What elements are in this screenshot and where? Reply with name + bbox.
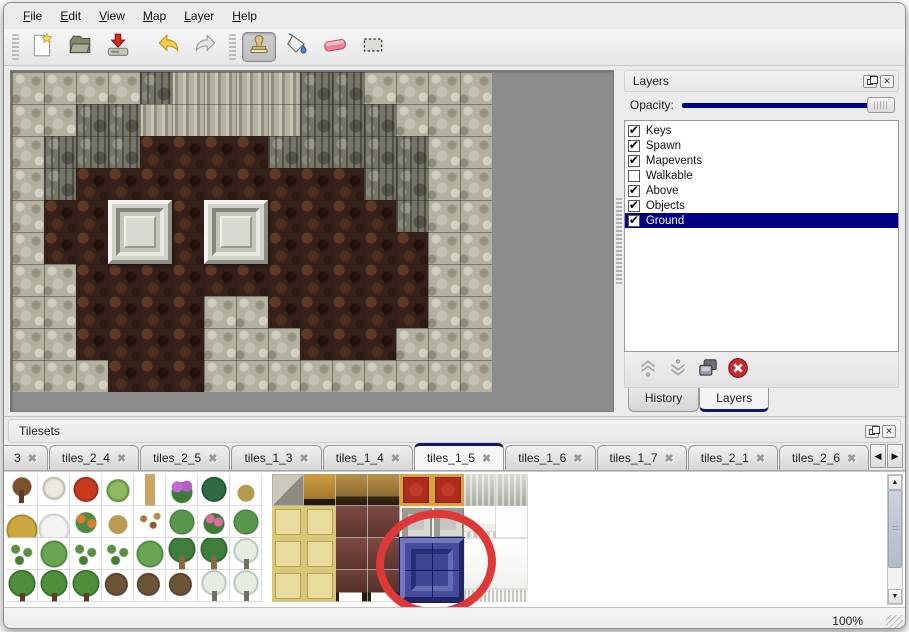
layer-name: Objects <box>646 200 685 212</box>
tileset-palette[interactable]: ▲ ▼ <box>4 471 905 607</box>
opacity-slider-handle[interactable] <box>867 97 895 113</box>
layer-visibility-checkbox[interactable] <box>628 170 640 182</box>
map-tile-rock-scale[interactable] <box>460 104 492 136</box>
map-tile-cobble-floor[interactable] <box>364 232 396 264</box>
tab-close-icon[interactable]: ✖ <box>665 452 674 465</box>
tileset-tile-sprout[interactable] <box>70 538 102 570</box>
tileset-tab-tiles_2_1[interactable]: tiles_2_1✖ <box>688 445 778 470</box>
tilesets-float-button[interactable] <box>865 425 879 438</box>
tileset-scrollbar[interactable]: ▲ ▼ <box>887 474 903 605</box>
map-tile-cobble-floor[interactable] <box>108 264 140 296</box>
map-tile-rock-scale[interactable] <box>428 136 460 168</box>
map-tile-cliff-wall[interactable] <box>364 104 396 136</box>
layer-visibility-checkbox[interactable] <box>628 125 640 137</box>
map-tile-cobble-floor[interactable] <box>396 232 428 264</box>
map-tile-cobble-floor[interactable] <box>108 168 140 200</box>
map-tile-rock-scale[interactable] <box>44 72 76 104</box>
tileset-tile-sprout[interactable] <box>102 538 134 570</box>
map-tile-rock-scale[interactable] <box>428 296 460 328</box>
map-tile-cobble-floor[interactable] <box>364 296 396 328</box>
map-tile-cliff-wall[interactable] <box>332 136 364 168</box>
map-tile-cliff-wall[interactable] <box>108 136 140 168</box>
layer-row-keys[interactable]: Keys <box>625 123 898 138</box>
tileset-tile-dgrass[interactable] <box>230 474 262 506</box>
map-tile-cobble-floor[interactable] <box>108 360 140 392</box>
scroll-tabs-left-button[interactable]: ◀ <box>870 444 886 468</box>
tileset-tile-stonec[interactable] <box>272 474 304 506</box>
tileset-tile-mat[interactable] <box>272 506 304 538</box>
scroll-tabs-right-button[interactable]: ▶ <box>887 444 903 468</box>
tab-close-icon[interactable]: ✖ <box>299 452 308 465</box>
layers-close-button[interactable]: ✕ <box>880 75 894 88</box>
tileset-tab-label: tiles_1_4 <box>336 451 384 465</box>
map-tile-cobble-floor[interactable] <box>172 296 204 328</box>
tileset-tab-tiles_1_4[interactable]: tiles_1_4✖ <box>323 445 413 470</box>
map-tile-cobble-floor[interactable] <box>172 264 204 296</box>
tileset-tab-tiles_2_4[interactable]: tiles_2_4✖ <box>49 445 139 470</box>
map-tile-rock-scale[interactable] <box>460 232 492 264</box>
tileset-tile-maroon[interactable] <box>336 506 368 538</box>
map-tile-rock-scale[interactable] <box>428 232 460 264</box>
tileset-tile-palm[interactable] <box>198 538 230 570</box>
tileset-tile-maroon[interactable] <box>368 538 400 570</box>
map-tile-cobble-floor[interactable] <box>236 264 268 296</box>
map-tile-rock-scale[interactable] <box>364 360 396 392</box>
map-tile-cobble-floor[interactable] <box>204 136 236 168</box>
map-tile-rock-scale[interactable] <box>268 360 300 392</box>
map-tile-cliff-wall[interactable] <box>300 72 332 104</box>
map-tile-cobble-floor[interactable] <box>396 264 428 296</box>
map-tile-cobble-floor[interactable] <box>108 296 140 328</box>
map-tile-rock-scale[interactable] <box>428 360 460 392</box>
tab-close-icon[interactable]: ✖ <box>28 452 37 465</box>
map-tile-stone-pillar[interactable] <box>236 72 268 104</box>
map-tile-cobble-floor[interactable] <box>300 296 332 328</box>
map-tile-cobble-floor[interactable] <box>300 232 332 264</box>
map-tile-cobble-floor[interactable] <box>396 296 428 328</box>
map-tile-cliff-wall[interactable] <box>364 136 396 168</box>
map-canvas[interactable] <box>10 70 614 412</box>
map-tile-cliff-wall[interactable] <box>396 200 428 232</box>
map-tile-rock-scale[interactable] <box>204 360 236 392</box>
map-tile-cobble-floor[interactable] <box>140 360 172 392</box>
map-tile-cobble-floor[interactable] <box>76 296 108 328</box>
undo-button[interactable] <box>151 32 185 62</box>
layer-visibility-checkbox[interactable] <box>628 140 640 152</box>
tileset-tile-gtable[interactable] <box>304 474 336 506</box>
map-tile-cobble-floor[interactable] <box>300 200 332 232</box>
map-tile-cobble-floor[interactable] <box>172 360 204 392</box>
map-tile-rock-scale[interactable] <box>44 264 76 296</box>
map-tile-cobble-floor[interactable] <box>332 232 364 264</box>
tileset-tile-pbush[interactable] <box>166 474 198 506</box>
tileset-tile-clothtop[interactable] <box>464 506 496 538</box>
map-tile-rock-scale[interactable] <box>460 168 492 200</box>
map-tile-rock-scale[interactable] <box>76 360 108 392</box>
map-tile-rock-scale[interactable] <box>300 360 332 392</box>
map-tile-cobble-floor[interactable] <box>76 168 108 200</box>
layer-duplicate-button[interactable] <box>693 356 723 384</box>
map-tile-cobble-floor[interactable] <box>172 328 204 360</box>
map-tile-cliff-wall[interactable] <box>140 72 172 104</box>
tileset-tile-whitet[interactable] <box>496 506 528 538</box>
tileset-tab-tiles_1_3[interactable]: tiles_1_3✖ <box>231 445 321 470</box>
map-tile-cobble-floor[interactable] <box>332 168 364 200</box>
layer-row-spawn[interactable]: Spawn <box>625 138 898 153</box>
map-tile-rock-scale[interactable] <box>364 72 396 104</box>
map-tile-rock-scale[interactable] <box>460 360 492 392</box>
map-tile-cobble-floor[interactable] <box>140 168 172 200</box>
layers-float-button[interactable] <box>863 75 877 88</box>
map-tile-cliff-wall[interactable] <box>268 136 300 168</box>
map-tile-cobble-floor[interactable] <box>332 328 364 360</box>
map-tile-rock-scale[interactable] <box>236 296 268 328</box>
map-tile-cliff-wall[interactable] <box>44 168 76 200</box>
map-tile-rock-scale[interactable] <box>44 296 76 328</box>
layer-row-walkable[interactable]: Walkable <box>625 168 898 183</box>
door-frame[interactable] <box>204 200 268 264</box>
tileset-tile-pine[interactable] <box>6 570 38 602</box>
map-tile-cliff-wall[interactable] <box>396 136 428 168</box>
map-tile-stone-pillar[interactable] <box>268 104 300 136</box>
map-tile-cobble-floor[interactable] <box>268 264 300 296</box>
tileset-tile-marleg[interactable] <box>336 570 368 602</box>
opacity-row: Opacity: <box>624 92 899 116</box>
toolbar <box>4 29 905 66</box>
tileset-tile-wood[interactable] <box>336 474 368 506</box>
map-tile-rock-scale[interactable] <box>268 328 300 360</box>
fill-bucket-button[interactable] <box>280 32 314 62</box>
tileset-tile-leaves[interactable] <box>134 506 166 538</box>
tileset-tab-label: 3 <box>14 451 21 465</box>
map-tile-cliff-wall[interactable] <box>396 168 428 200</box>
map-tile-cliff-wall[interactable] <box>300 136 332 168</box>
map-tile-cobble-floor[interactable] <box>268 232 300 264</box>
map-tile-stone-pillar[interactable] <box>236 104 268 136</box>
tileset-tab-label: tiles_1_6 <box>518 451 566 465</box>
map-tile-cobble-floor[interactable] <box>172 136 204 168</box>
tileset-tile-pine[interactable] <box>70 570 102 602</box>
tab-close-icon[interactable]: ✖ <box>482 452 491 465</box>
map-tile-rock-scale[interactable] <box>460 72 492 104</box>
map-tile-rock-scale[interactable] <box>12 328 44 360</box>
menu-help[interactable]: Help <box>223 5 266 27</box>
map-tile-cobble-floor[interactable] <box>76 232 108 264</box>
layer-visibility-checkbox[interactable] <box>628 200 640 212</box>
map-tile-cobble-floor[interactable] <box>332 264 364 296</box>
map-tile-cobble-floor[interactable] <box>364 264 396 296</box>
tileset-tile-spine[interactable] <box>230 570 262 602</box>
map-canvas-wrap <box>4 66 614 416</box>
map-tile-stone-pillar[interactable] <box>172 72 204 104</box>
map-tile-cobble-floor[interactable] <box>76 264 108 296</box>
map-tile-cobble-floor[interactable] <box>76 200 108 232</box>
map-tile-cobble-floor[interactable] <box>204 264 236 296</box>
map-tile-rock-scale[interactable] <box>204 328 236 360</box>
tileset-tile-lily[interactable] <box>230 506 262 538</box>
tileset-tile-tree[interactable] <box>6 474 38 506</box>
dock-tab-layers[interactable]: Layers <box>699 388 769 412</box>
tileset-tile-rcarpet[interactable] <box>432 474 464 506</box>
tileset-tile-pine[interactable] <box>38 570 70 602</box>
tileset-cloth[interactable] <box>464 538 528 602</box>
scrollbar-thumb[interactable] <box>888 490 902 568</box>
layer-visibility-checkbox[interactable] <box>628 215 640 227</box>
layer-move-up-button[interactable] <box>633 356 663 384</box>
map-tile-cobble-floor[interactable] <box>300 328 332 360</box>
tileset-tab-3[interactable]: 3✖ <box>4 445 48 470</box>
tileset-tile-mat[interactable] <box>272 570 304 602</box>
opacity-slider[interactable] <box>682 97 895 113</box>
tab-scroll-buttons: ◀ ▶ <box>869 444 903 468</box>
layer-list: KeysSpawnMapeventsWalkableAboveObjectsGr… <box>624 120 899 352</box>
fill-bucket-icon <box>284 32 310 63</box>
tileset-tile-silver[interactable] <box>464 474 496 506</box>
map-tile-cobble-floor[interactable] <box>300 264 332 296</box>
tileset-tile-spine[interactable] <box>230 538 262 570</box>
menu-file[interactable]: File <box>14 5 51 27</box>
map-tile-rock-scale[interactable] <box>12 136 44 168</box>
opacity-slider-track[interactable] <box>682 103 895 108</box>
tileset-tile-stump[interactable] <box>102 474 134 506</box>
map-tile-rock-scale[interactable] <box>428 328 460 360</box>
tileset-tile-maroon[interactable] <box>336 538 368 570</box>
map-tile-rock-scale[interactable] <box>236 328 268 360</box>
map-tile-rock-scale[interactable] <box>44 360 76 392</box>
layer-row-mapevents[interactable]: Mapevents <box>625 153 898 168</box>
map-tile-cobble-floor[interactable] <box>236 136 268 168</box>
map-tile-cliff-wall[interactable] <box>332 72 364 104</box>
map-tile-rock-scale[interactable] <box>396 104 428 136</box>
scroll-down-button[interactable]: ▼ <box>888 589 902 604</box>
layer-visibility-checkbox[interactable] <box>628 155 640 167</box>
map-tile-cobble-floor[interactable] <box>44 200 76 232</box>
tileset-tile-mat[interactable] <box>272 538 304 570</box>
map-tile-cobble-floor[interactable] <box>236 168 268 200</box>
splitter-grip-icon <box>616 198 622 284</box>
menu-edit[interactable]: Edit <box>51 5 90 27</box>
tab-close-icon[interactable]: ✖ <box>756 452 765 465</box>
map-tile-rock-scale[interactable] <box>44 328 76 360</box>
tileset-tab-label: tiles_1_5 <box>427 451 475 465</box>
tileset-tab-tiles_1_7[interactable]: tiles_1_7✖ <box>597 445 687 470</box>
map-tile-cobble-floor[interactable] <box>268 168 300 200</box>
map-tile-cobble-floor[interactable] <box>204 168 236 200</box>
save-button[interactable] <box>101 32 135 62</box>
map-tile-rock-scale[interactable] <box>12 200 44 232</box>
eraser-button[interactable] <box>318 32 352 62</box>
tab-close-icon[interactable]: ✖ <box>117 452 126 465</box>
vertical-splitter[interactable] <box>614 66 624 416</box>
tileset-tile-bush[interactable] <box>134 538 166 570</box>
map-tile-stone-pillar[interactable] <box>204 104 236 136</box>
layer-delete-button[interactable] <box>723 356 753 384</box>
map-tile-cliff-wall[interactable] <box>76 136 108 168</box>
map-tile-stone-pillar[interactable] <box>268 72 300 104</box>
map-tile-rock-scale[interactable] <box>428 264 460 296</box>
map-tile-rock-scale[interactable] <box>12 232 44 264</box>
map-tile-cobble-floor[interactable] <box>364 200 396 232</box>
map-tile-cobble-floor[interactable] <box>172 200 204 232</box>
tileset-tile-oflower[interactable] <box>70 506 102 538</box>
map-tile-rock-scale[interactable] <box>236 360 268 392</box>
map-tile-cliff-wall[interactable] <box>332 104 364 136</box>
map-tile-cobble-floor[interactable] <box>172 232 204 264</box>
tileset-tab-label: tiles_2_6 <box>792 451 840 465</box>
map-tile-rock-scale[interactable] <box>12 296 44 328</box>
tileset-tile-mat[interactable] <box>304 506 336 538</box>
tileset-tile-frame[interactable] <box>432 506 464 538</box>
tileset-tile-twist[interactable] <box>134 570 166 602</box>
map-tile-rock-scale[interactable] <box>428 104 460 136</box>
layer-name: Mapevents <box>646 155 702 167</box>
tileset-tile-bush[interactable] <box>38 538 70 570</box>
tilesets-close-button[interactable]: ✕ <box>882 425 896 438</box>
map-tile-cobble-floor[interactable] <box>108 328 140 360</box>
map-tile-cobble-floor[interactable] <box>140 264 172 296</box>
tileset-tab-tiles_2_6[interactable]: tiles_2_6✖ <box>779 445 869 470</box>
move-up-icon <box>636 356 660 383</box>
layer-name: Walkable <box>646 170 693 182</box>
scroll-up-button[interactable]: ▲ <box>888 475 902 490</box>
menu-layer[interactable]: Layer <box>175 5 223 27</box>
tileset-tile-rose[interactable] <box>198 506 230 538</box>
toolbar-handle <box>229 34 236 60</box>
map-tile-cobble-floor[interactable] <box>140 296 172 328</box>
tileset-tile-mat[interactable] <box>304 570 336 602</box>
map-tile-rock-scale[interactable] <box>396 360 428 392</box>
tileset-tile-rbloom[interactable] <box>70 474 102 506</box>
tileset-tile-trunk[interactable] <box>134 474 166 506</box>
dock-tabs: HistoryLayers <box>624 388 899 416</box>
tileset-tile-frame[interactable] <box>400 506 432 538</box>
new-file-button[interactable] <box>25 32 59 62</box>
map-tile-rock-scale[interactable] <box>428 168 460 200</box>
stamp-button[interactable] <box>242 32 276 62</box>
map-tile-rock-scale[interactable] <box>460 136 492 168</box>
stamp-icon <box>246 32 272 63</box>
map-tile-rock-scale[interactable] <box>44 104 76 136</box>
tab-close-icon[interactable]: ✖ <box>391 452 400 465</box>
tileset-tile-marleg[interactable] <box>368 570 400 602</box>
map-tile-rock-scale[interactable] <box>460 264 492 296</box>
tileset-tile-lily[interactable] <box>166 506 198 538</box>
app-window: FileEditViewMapLayerHelp Layers ✕ Opacit… <box>3 2 906 629</box>
tab-close-icon[interactable]: ✖ <box>573 452 582 465</box>
tileset-tile-twist[interactable] <box>102 570 134 602</box>
open-folder-button[interactable] <box>63 32 97 62</box>
tileset-tile-snowpile[interactable] <box>38 506 70 538</box>
map-tile-cliff-wall[interactable] <box>108 104 140 136</box>
map-tile-stone-pillar[interactable] <box>204 72 236 104</box>
map-tile-rock-scale[interactable] <box>460 200 492 232</box>
map-tile-rock-scale[interactable] <box>12 72 44 104</box>
menu-map[interactable]: Map <box>134 5 175 27</box>
toolbar-handle <box>12 34 19 60</box>
tileset-tile-fern[interactable] <box>198 474 230 506</box>
map-tile-cliff-wall[interactable] <box>76 104 108 136</box>
map-tile-cobble-floor[interactable] <box>364 328 396 360</box>
tileset-tile-rcarpet[interactable] <box>400 474 432 506</box>
map-tile-rock-scale[interactable] <box>396 328 428 360</box>
map-tile-rock-scale[interactable] <box>460 296 492 328</box>
tileset-tile-btree[interactable] <box>38 474 70 506</box>
tileset-tab-tiles_1_6[interactable]: tiles_1_6✖ <box>505 445 595 470</box>
map-tile-rock-scale[interactable] <box>12 360 44 392</box>
map-tile-cobble-floor[interactable] <box>332 296 364 328</box>
map-tile-rock-scale[interactable] <box>108 72 140 104</box>
map-tile-rock-scale[interactable] <box>12 168 44 200</box>
select-marquee-button[interactable] <box>356 32 390 62</box>
tileset-tile-palm[interactable] <box>166 538 198 570</box>
main-area: Layers ✕ Opacity: KeysSpawnMapeventsWalk… <box>4 66 905 416</box>
map-tile-cobble-floor[interactable] <box>172 168 204 200</box>
layer-row-above[interactable]: Above <box>625 183 898 198</box>
map-tile-rock-scale[interactable] <box>460 328 492 360</box>
tileset-tile-spine[interactable] <box>198 570 230 602</box>
tileset-tab-tiles_1_5[interactable]: tiles_1_5✖ <box>414 443 504 470</box>
map-tile-rock-scale[interactable] <box>76 72 108 104</box>
tile-map[interactable] <box>12 72 492 392</box>
map-tile-rock-scale[interactable] <box>396 72 428 104</box>
map-tile-cobble-floor[interactable] <box>268 296 300 328</box>
tileset-tile-sprout[interactable] <box>6 538 38 570</box>
map-tile-rock-scale[interactable] <box>428 72 460 104</box>
map-tile-rock-scale[interactable] <box>12 264 44 296</box>
door-frame[interactable] <box>108 200 172 264</box>
redo-button[interactable] <box>189 32 223 62</box>
save-icon <box>105 32 131 63</box>
map-tile-cobble-floor[interactable] <box>300 168 332 200</box>
map-tile-stone-pillar[interactable] <box>140 104 172 136</box>
map-tile-cobble-floor[interactable] <box>76 328 108 360</box>
map-tile-cobble-floor[interactable] <box>44 232 76 264</box>
tileset-tile-mat[interactable] <box>304 538 336 570</box>
tileset-tile-silver[interactable] <box>496 474 528 506</box>
resize-grip-icon[interactable] <box>886 615 903 629</box>
layer-row-objects[interactable]: Objects <box>625 198 898 213</box>
eraser-icon <box>322 32 348 63</box>
map-tile-rock-scale[interactable] <box>12 104 44 136</box>
tab-close-icon[interactable]: ✖ <box>208 452 217 465</box>
layer-visibility-checkbox[interactable] <box>628 185 640 197</box>
menu-view[interactable]: View <box>90 5 134 27</box>
map-tile-rock-scale[interactable] <box>332 360 364 392</box>
tab-close-icon[interactable]: ✖ <box>847 452 856 465</box>
layer-move-down-button[interactable] <box>663 356 693 384</box>
dock-tab-history[interactable]: History <box>628 388 699 412</box>
map-tile-cobble-floor[interactable] <box>140 328 172 360</box>
map-tile-cliff-wall[interactable] <box>300 104 332 136</box>
map-tile-cobble-floor[interactable] <box>140 136 172 168</box>
map-tile-cliff-wall[interactable] <box>44 136 76 168</box>
map-tile-rock-scale[interactable] <box>204 296 236 328</box>
tileset-tab-tiles_2_5[interactable]: tiles_2_5✖ <box>140 445 230 470</box>
tileset-tile-hay[interactable] <box>6 506 38 538</box>
tileset-blue-tile-selected[interactable] <box>400 538 464 602</box>
layers-panel-title: Layers <box>633 74 669 88</box>
map-tile-cliff-wall[interactable] <box>364 168 396 200</box>
tileset-tile-twist[interactable] <box>166 570 198 602</box>
map-tile-rock-scale[interactable] <box>428 200 460 232</box>
map-tile-cobble-floor[interactable] <box>268 200 300 232</box>
map-tile-stone-pillar[interactable] <box>172 104 204 136</box>
layer-row-ground[interactable]: Ground <box>625 213 898 228</box>
tileset-tile-maroon[interactable] <box>368 506 400 538</box>
tileset-tile-wood[interactable] <box>368 474 400 506</box>
tileset-tile-dry[interactable] <box>102 506 134 538</box>
map-tile-cobble-floor[interactable] <box>332 200 364 232</box>
